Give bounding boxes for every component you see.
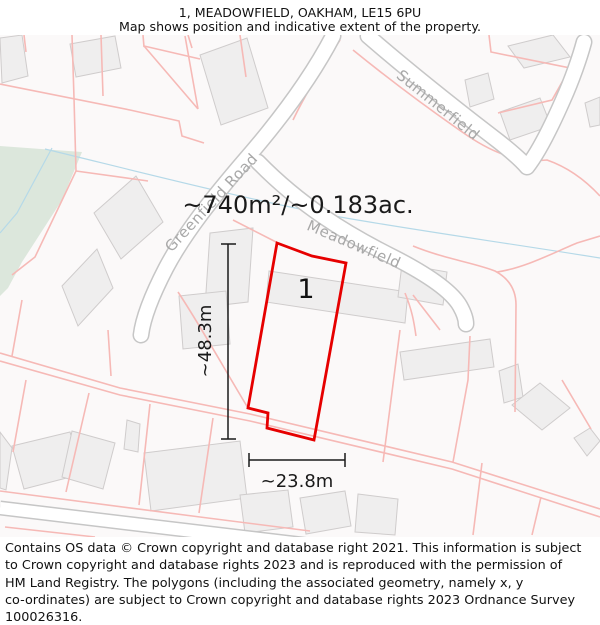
- attribution-line: to Crown copyright and database rights 2…: [5, 557, 598, 574]
- building: [124, 420, 140, 452]
- building: [355, 494, 398, 535]
- height-dimension-label: ~48.3m: [195, 305, 216, 378]
- attribution-line: 100026316.: [5, 609, 598, 625]
- plot-number-label: 1: [297, 274, 314, 305]
- building: [240, 490, 293, 533]
- header: 1, MEADOWFIELD, OAKHAM, LE15 6PU Map sho…: [0, 0, 600, 35]
- area-label: ~740m²/~0.183ac.: [182, 191, 413, 219]
- property-map-page: Greenfield Road Meadowfield Summerfield …: [0, 0, 600, 625]
- attribution-line: co-ordinates) are subject to Crown copyr…: [5, 592, 598, 609]
- attribution-footer: Contains OS data © Crown copyright and d…: [0, 537, 600, 625]
- page-title: 1, MEADOWFIELD, OAKHAM, LE15 6PU: [0, 0, 600, 20]
- attribution-line: Contains OS data © Crown copyright and d…: [5, 537, 598, 557]
- page-subtitle: Map shows position and indicative extent…: [0, 20, 600, 34]
- building: [144, 441, 247, 511]
- map: Greenfield Road Meadowfield Summerfield …: [0, 0, 600, 625]
- attribution-line: HM Land Registry. The polygons (includin…: [5, 575, 598, 592]
- width-dimension-label: ~23.8m: [261, 471, 334, 492]
- building: [300, 491, 351, 534]
